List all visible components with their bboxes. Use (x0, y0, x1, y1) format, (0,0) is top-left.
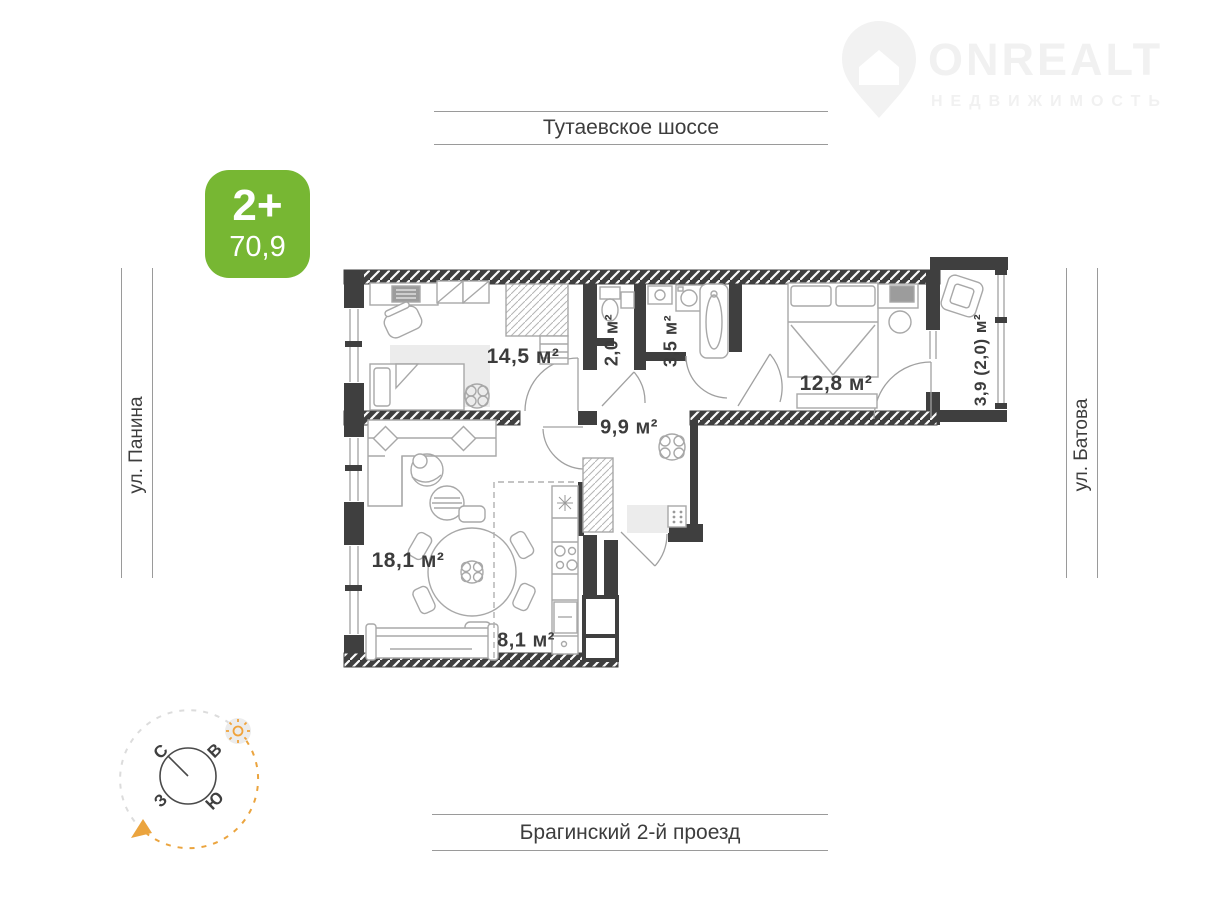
wall-partition-bath (634, 284, 646, 370)
window-icon (345, 438, 362, 501)
office-chair-person-icon (411, 454, 443, 486)
bathtub-icon (700, 284, 728, 358)
hall-wardrobe-icon (583, 458, 613, 532)
door-arc-balcony (874, 362, 931, 419)
room-label-14-5: 14,5 м² (487, 345, 560, 369)
fridge-icon (554, 602, 577, 633)
window-icon (345, 546, 362, 634)
door-arc-bedroom (738, 354, 782, 406)
wall-balcony-bottom (937, 410, 1007, 422)
double-bed-icon (788, 283, 878, 377)
wall-shaft-b (604, 540, 618, 598)
window-icon (345, 309, 362, 382)
door-arc-wc (602, 372, 645, 406)
wall-partition-wc (583, 284, 597, 370)
door-arc-bath (686, 356, 727, 398)
wc-sink-icon (621, 292, 634, 308)
bedroom-desk-icon (878, 284, 918, 333)
room-label-2-0: 2,0 м² (602, 314, 623, 366)
wall-hall-right (690, 420, 698, 524)
plant-icon (659, 434, 685, 460)
wall-balcony-top (930, 257, 1008, 270)
wall-top (344, 270, 940, 284)
balcony-glazing (995, 269, 1007, 409)
washer-icon (676, 285, 702, 311)
wall-bedroom-bottom (690, 411, 937, 425)
wall-right-upper (926, 270, 940, 330)
wall-left-lower1 (344, 411, 364, 437)
bath-sink-icon (648, 286, 672, 304)
room-label-3-5: 3,5 м² (661, 315, 682, 367)
room-label-hall: 9,9 м² (600, 417, 658, 440)
corner-sofa-icon (368, 420, 496, 506)
wall-left-upper (344, 270, 364, 308)
window-icon (930, 331, 936, 359)
floorplan-drawing (0, 0, 1223, 910)
doormat-icon (668, 506, 686, 527)
shaft-box-1 (584, 597, 617, 636)
wall-shaft-a (583, 535, 597, 596)
wall-left-upper2 (344, 383, 364, 411)
wall-partition-bedroom (729, 284, 742, 352)
room-label-12-8: 12,8 м² (800, 372, 873, 396)
floorplan-page: ONREALT НЕДВИЖИМОСТЬ 2+ 70,9 Тутаевское … (0, 0, 1223, 910)
bed-icon (370, 364, 464, 410)
room-label-kitchen: 8,1 м² (497, 630, 555, 653)
shelf-icon (437, 281, 489, 303)
desk-icon (370, 283, 438, 305)
door-arc-living (543, 427, 583, 469)
sofa-icon (366, 624, 498, 660)
armchair-icon (939, 273, 984, 318)
door-arc-entry (621, 532, 667, 566)
room-label-living: 18,1 м² (372, 549, 445, 573)
shaft-box-2 (584, 636, 617, 660)
wall-left-lower2 (344, 502, 364, 545)
compass (120, 710, 258, 848)
hall-rug (627, 505, 669, 533)
room-label-balcony: 3,9 (2,0) м² (971, 314, 991, 406)
wall-pier-hall (578, 411, 597, 425)
bed-bench-icon (797, 394, 877, 408)
